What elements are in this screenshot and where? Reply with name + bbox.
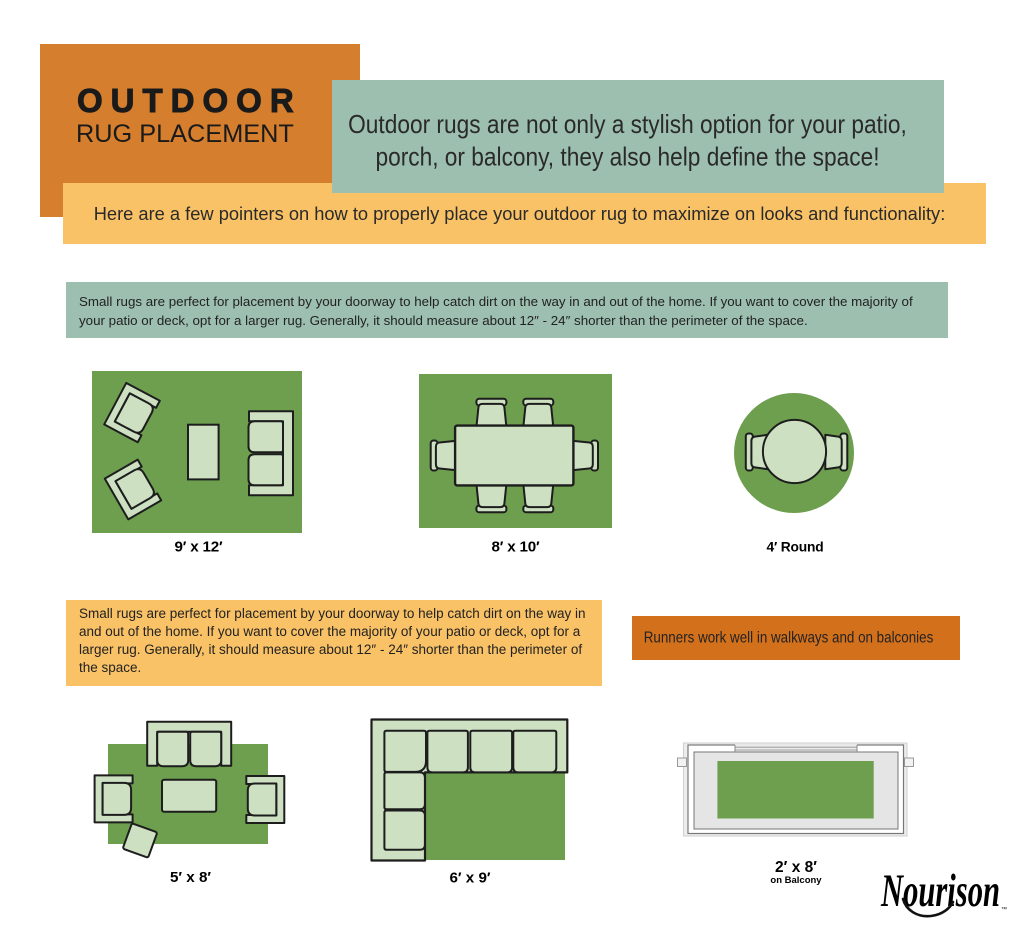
svg-text:Nourison: Nourison (880, 865, 1000, 917)
svg-text:on Balcony: on Balcony (770, 875, 822, 886)
svg-text:™: ™ (1001, 906, 1007, 913)
svg-text:5′ x 8′: 5′ x 8′ (170, 869, 211, 886)
svg-text:8′ x 10′: 8′ x 10′ (492, 539, 540, 556)
svg-text:4′ Round: 4′ Round (767, 540, 824, 555)
svg-text:6′ x 9′: 6′ x 9′ (449, 870, 490, 887)
svg-text:2′ x 8′: 2′ x 8′ (775, 859, 817, 876)
svg-text:9′ x 12′: 9′ x 12′ (175, 539, 223, 556)
